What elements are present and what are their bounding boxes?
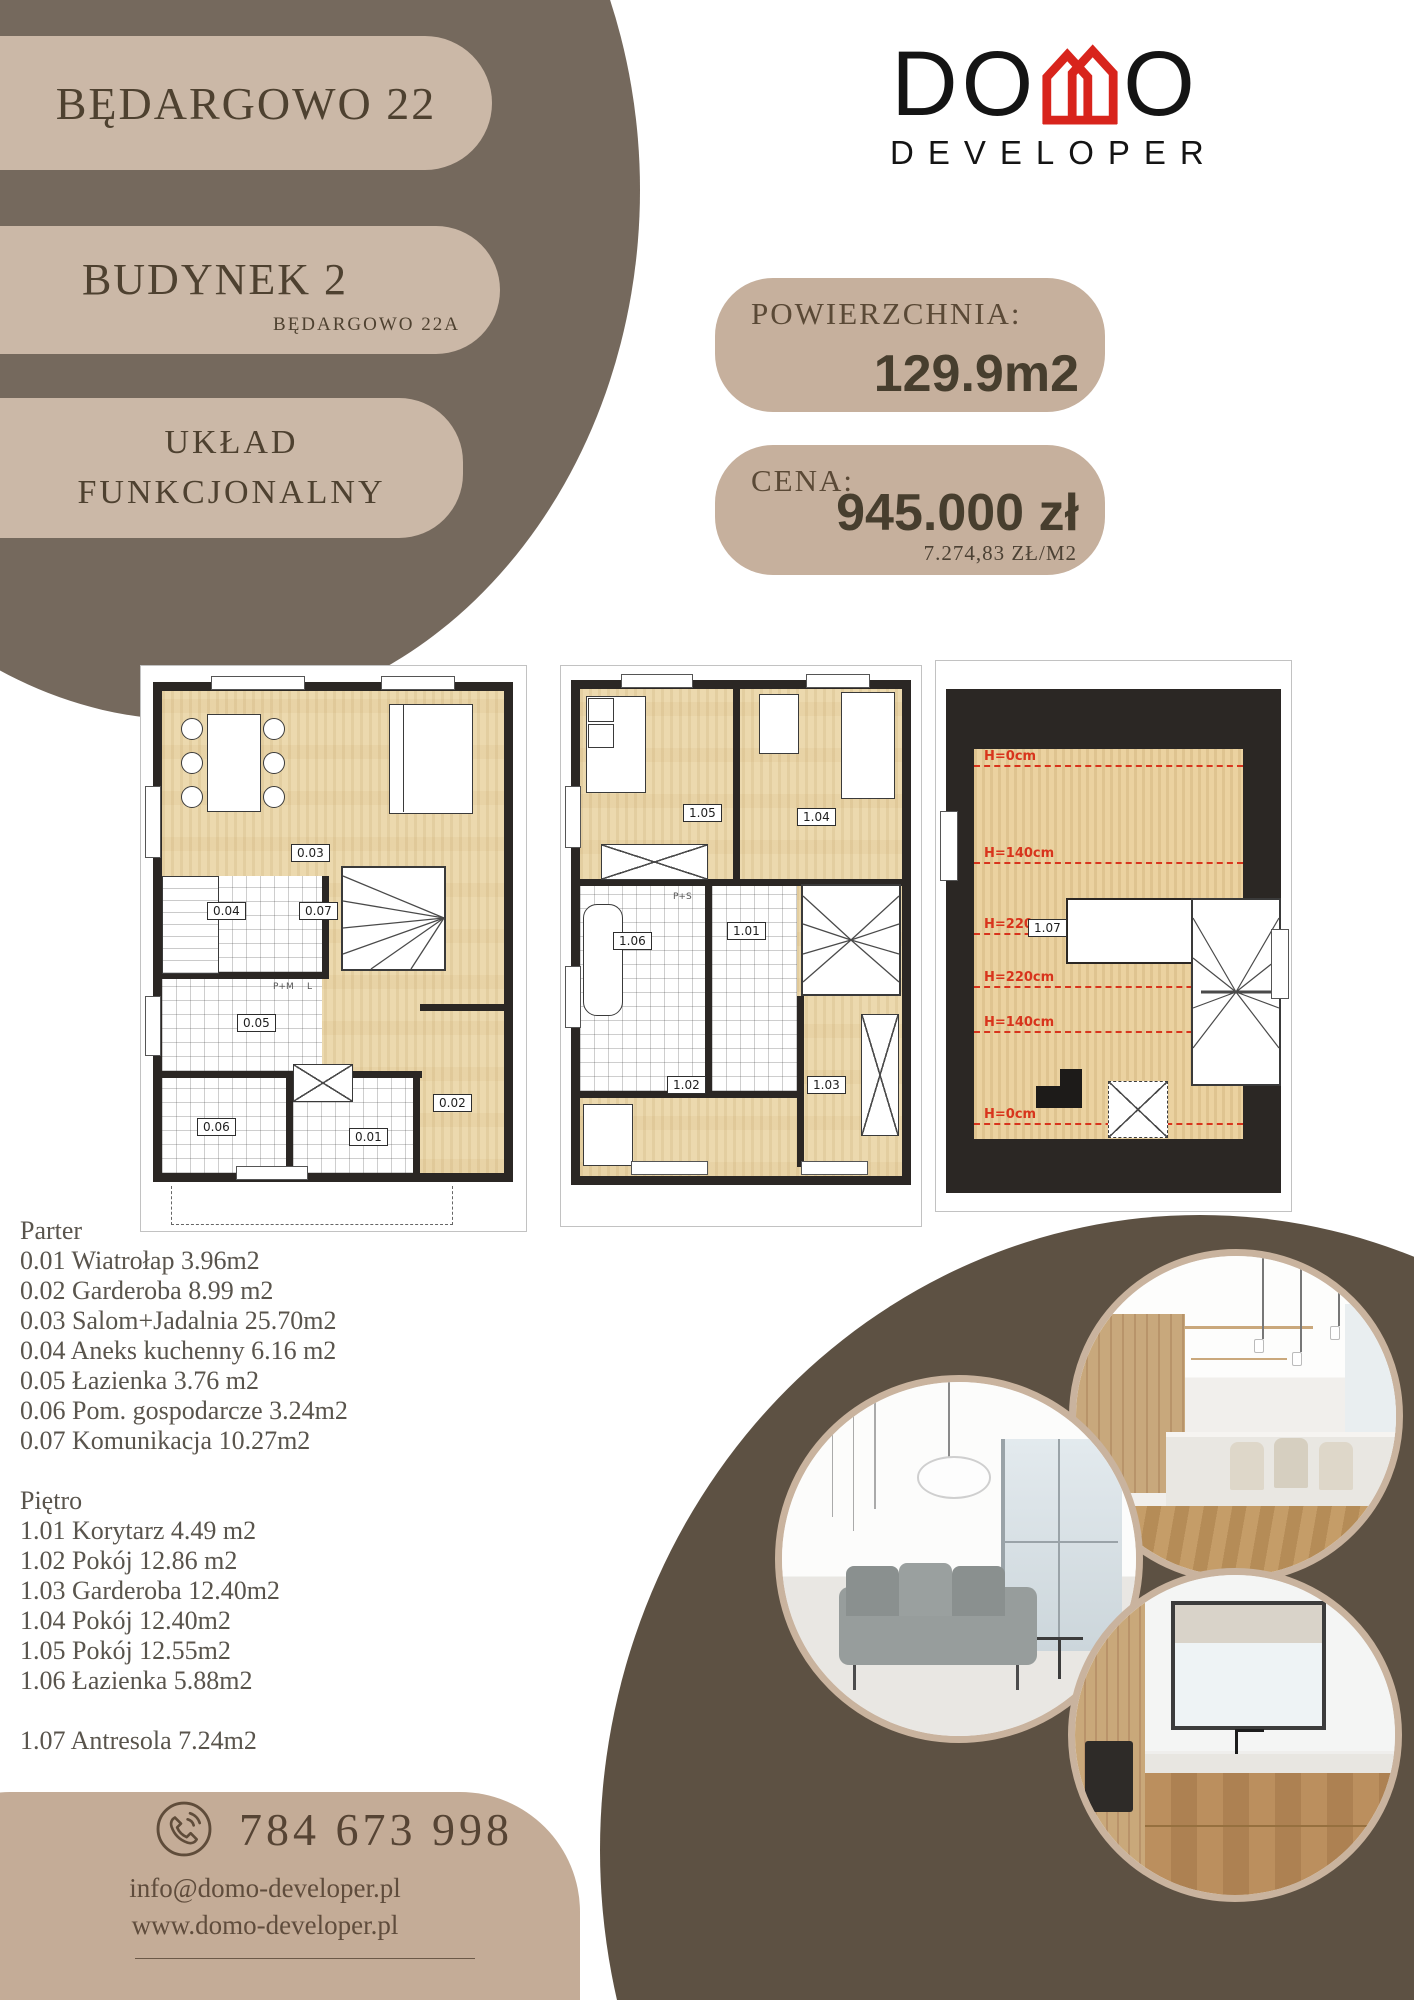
list-item: 1.01 Korytarz 4.49 m2 — [20, 1516, 480, 1546]
price-badge: CENA: 945.000 zł 7.274,83 ZŁ/M2 — [715, 445, 1105, 575]
height-label: H=140cm — [984, 846, 1054, 861]
list-item: 1.05 Pokój 12.55m2 — [20, 1636, 480, 1666]
bathroom-photo — [1068, 1568, 1402, 1902]
section-line2: FUNKCJONALNY — [77, 468, 385, 518]
room-list: Parter 0.01 Wiatrołap 3.96m2 0.02 Garder… — [20, 1216, 480, 1756]
bathtub — [583, 904, 623, 1016]
room-label: 0.05 — [237, 1014, 276, 1032]
section-line1: UKŁAD — [165, 418, 299, 468]
annotation-ps: P+S — [673, 892, 692, 902]
price-value: 945.000 zł — [836, 483, 1079, 543]
annotation-pm: P+M — [273, 982, 294, 992]
logo-subtitle: DEVELOPER — [890, 134, 1200, 172]
room-label: 0.04 — [207, 902, 246, 920]
list-item: 0.07 Komunikacja 10.27m2 — [20, 1426, 480, 1456]
annotation-l: L — [307, 982, 312, 992]
area-badge: POWIERZCHNIA: 129.9m2 — [715, 278, 1105, 412]
room-label: 1.01 — [727, 922, 766, 940]
house-icon — [1039, 42, 1121, 128]
room-label: 1.03 — [807, 1076, 846, 1094]
list-item: 0.05 Łazienka 3.76 m2 — [20, 1366, 480, 1396]
company-logo: DO O DEVELOPER — [890, 40, 1200, 172]
estate-name: BĘDARGOWO 22 — [56, 77, 436, 130]
building-subtitle: BĘDARGOWO 22A — [273, 314, 460, 336]
room-label: 1.06 — [613, 932, 652, 950]
room-label: 1.07 — [1028, 919, 1067, 937]
phone-number: 784 673 998 — [239, 1803, 513, 1856]
height-label: H=140cm — [984, 1015, 1054, 1030]
list-item: 0.04 Aneks kuchenny 6.16 m2 — [20, 1336, 480, 1366]
kitchen-counter — [162, 876, 219, 974]
area-value: 129.9m2 — [874, 344, 1079, 404]
height-label: H=220cm — [984, 970, 1054, 985]
contact-email: info@domo-developer.pl — [50, 1870, 480, 1907]
list-item: 0.06 Pom. gospodarcze 3.24m2 — [20, 1396, 480, 1426]
contact-divider — [135, 1958, 475, 1959]
phone-icon — [155, 1800, 213, 1858]
desk — [759, 694, 799, 754]
list-item-antresola: 1.07 Antresola 7.24m2 — [20, 1726, 480, 1756]
list-item: 0.01 Wiatrołap 3.96m2 — [20, 1246, 480, 1276]
height-label: H=0cm — [984, 1107, 1036, 1122]
contact-website: www.domo-developer.pl — [50, 1907, 480, 1944]
floorplan-pietro: 1.05 1.04 1.06 1.01 1.02 1.03 P+S — [560, 665, 922, 1227]
room-label: 1.05 — [683, 804, 722, 822]
list-item: 1.04 Pokój 12.40m2 — [20, 1606, 480, 1636]
stairs-pietro — [801, 884, 901, 996]
wardrobe-box — [293, 1064, 353, 1102]
building-name: BUDYNEK 2 — [0, 254, 430, 305]
room-label: 0.01 — [349, 1128, 388, 1146]
room-label: 0.07 — [299, 902, 338, 920]
room-label: 1.02 — [667, 1076, 706, 1094]
logo-text-do: DO — [891, 40, 1037, 128]
list-item: 0.03 Salom+Jadalnia 25.70m2 — [20, 1306, 480, 1336]
building-banner: BUDYNEK 2 BĘDARGOWO 22A — [0, 226, 500, 354]
wardrobe-box — [861, 1014, 899, 1136]
stairs-parter — [341, 866, 446, 971]
floorplan-attic: H=0cm H=140cm H=220cm H=220cm H=140cm H=… — [935, 660, 1292, 1212]
list-item: 0.02 Garderoba 8.99 m2 — [20, 1276, 480, 1306]
chimney — [1108, 1081, 1168, 1138]
room-label: 0.06 — [197, 1118, 236, 1136]
sofa — [389, 704, 473, 814]
contact-card: 784 673 998 info@domo-developer.pl www.d… — [0, 1792, 580, 2000]
room-label: 0.03 — [291, 844, 330, 862]
room-label: 1.04 — [797, 808, 836, 826]
wall-block — [1036, 1086, 1082, 1108]
logo-text-o: O — [1123, 40, 1199, 128]
stairs-attic — [1191, 898, 1281, 1086]
bed — [841, 692, 895, 799]
bed — [583, 1104, 633, 1166]
mezzanine-corridor — [1066, 898, 1200, 964]
room-label: 0.02 — [433, 1094, 472, 1112]
price-per-m2: 7.274,83 ZŁ/M2 — [924, 541, 1077, 566]
floorplan-parter: 0.03 0.04 0.07 0.05 0.06 0.01 0.02 P+M L — [140, 665, 527, 1232]
corridor-area — [712, 886, 797, 1091]
list-item: 1.06 Łazienka 5.88m2 — [20, 1666, 480, 1696]
area-label: POWIERZCHNIA: — [751, 296, 1022, 332]
list-item: 1.02 Pokój 12.86 m2 — [20, 1546, 480, 1576]
dining-table — [207, 714, 261, 812]
height-label: H=0cm — [984, 749, 1036, 764]
estate-banner: BĘDARGOWO 22 — [0, 36, 492, 170]
pietro-title: Piętro — [20, 1486, 480, 1516]
list-item: 1.03 Garderoba 12.40m2 — [20, 1576, 480, 1606]
wardrobe-box — [601, 844, 708, 880]
parter-title: Parter — [20, 1216, 480, 1246]
flyer-page: BĘDARGOWO 22 BUDYNEK 2 BĘDARGOWO 22A UKŁ… — [0, 0, 1414, 2000]
section-banner: UKŁAD FUNKCJONALNY — [0, 398, 463, 538]
